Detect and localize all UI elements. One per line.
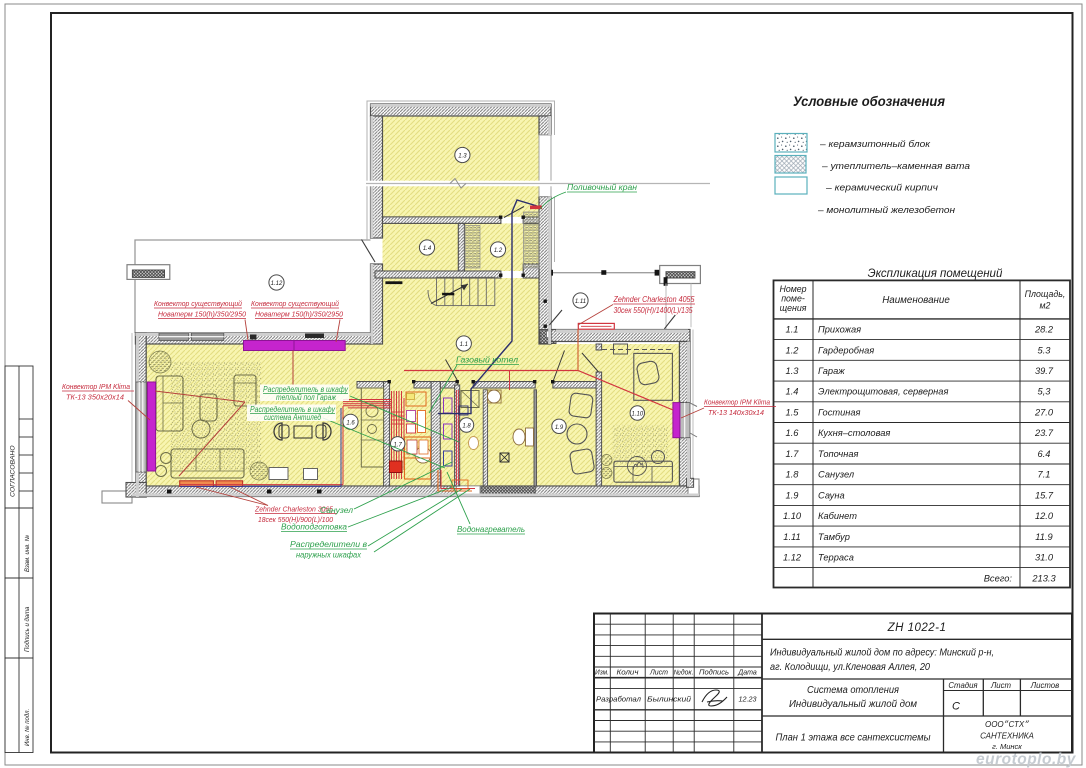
svg-text:1.9: 1.9: [555, 425, 564, 431]
svg-text:1.6: 1.6: [786, 428, 800, 438]
svg-text:Индивидуальный жилой дом: Индивидуальный жилой дом: [789, 699, 917, 710]
svg-text:Взам. инв. №: Взам. инв. №: [24, 534, 31, 572]
svg-text:28.2: 28.2: [1034, 325, 1054, 335]
svg-text:23.7: 23.7: [1034, 428, 1054, 438]
svg-text:1.5: 1.5: [786, 408, 800, 418]
svg-text:1.10: 1.10: [783, 511, 802, 521]
svg-text:Кабинет: Кабинет: [818, 511, 857, 521]
svg-text:м2: м2: [1040, 301, 1051, 311]
svg-text:система Антилед: система Антилед: [264, 413, 322, 422]
svg-text:г. Минск: г. Минск: [992, 742, 1022, 751]
svg-text:Кухня–столовая: Кухня–столовая: [818, 428, 890, 438]
svg-text:Наименование: Наименование: [882, 295, 950, 306]
svg-text:Конвектор IPM Klima: Конвектор IPM Klima: [62, 382, 130, 391]
svg-text:Новатерм 150(h)/350/2950: Новатерм 150(h)/350/2950: [158, 310, 247, 319]
svg-text:Гостиная: Гостиная: [818, 408, 861, 418]
svg-text:1.10: 1.10: [631, 412, 643, 418]
svg-text:Терраса: Терраса: [818, 553, 854, 563]
svg-text:Листов: Листов: [1030, 681, 1059, 690]
svg-text:5.3: 5.3: [1038, 345, 1052, 355]
svg-text:Гардеробная: Гардеробная: [818, 345, 874, 355]
svg-text:1.4: 1.4: [423, 246, 432, 252]
svg-text:– керамзитонный блок: – керамзитонный блок: [819, 139, 931, 150]
svg-text:1.9: 1.9: [786, 490, 799, 500]
svg-text:Стадия: Стадия: [948, 681, 978, 690]
svg-text:Газовый котел: Газовый котел: [456, 355, 518, 365]
svg-text:Гараж: Гараж: [818, 366, 845, 376]
svg-text:Условные обозначения: Условные обозначения: [793, 94, 945, 109]
svg-text:1.8: 1.8: [462, 424, 471, 430]
svg-text:Индивидуальный жилой дом по ад: Индивидуальный жилой дом по адресу: Минс…: [770, 648, 994, 659]
svg-text:Разработал: Разработал: [596, 696, 641, 704]
svg-text:Былинский: Былинский: [647, 696, 691, 704]
svg-text:Новатерм 150(h)/350/2950: Новатерм 150(h)/350/2950: [255, 310, 344, 319]
svg-text:Санузел: Санузел: [320, 506, 354, 515]
svg-text:ООО״СТХ״: ООО״СТХ״: [985, 720, 1029, 729]
svg-text:Лист: Лист: [649, 670, 668, 677]
svg-text:поме-: поме-: [781, 294, 805, 304]
svg-text:1.12: 1.12: [783, 553, 802, 563]
svg-text:1.11: 1.11: [575, 299, 586, 305]
svg-text:Санузел: Санузел: [818, 470, 855, 480]
svg-text:– монолитный железобетон: – монолитный железобетон: [817, 205, 956, 216]
svg-text:Площадь,: Площадь,: [1025, 289, 1066, 299]
svg-text:12.0: 12.0: [1035, 511, 1054, 521]
svg-text:1.4: 1.4: [786, 387, 799, 397]
svg-text:1.6: 1.6: [346, 420, 355, 426]
svg-text:Распределители в: Распределители в: [290, 539, 368, 549]
svg-text:39.7: 39.7: [1035, 366, 1054, 376]
svg-text:– утеплитель–каменная вата: – утеплитель–каменная вата: [821, 161, 970, 172]
svg-text:Изм.: Изм.: [595, 670, 609, 677]
svg-text:Водонагреватель: Водонагреватель: [457, 524, 525, 534]
svg-text:теплый пол Гараж: теплый пол Гараж: [276, 393, 337, 402]
svg-text:30сек 550(Н)/1400(L)/135: 30сек 550(Н)/1400(L)/135: [614, 306, 694, 315]
svg-text:27.0: 27.0: [1034, 408, 1054, 418]
svg-text:Колич: Колич: [617, 670, 639, 677]
svg-text:Конвектор существующий: Конвектор существующий: [154, 299, 242, 308]
svg-text:5,3: 5,3: [1038, 387, 1052, 397]
svg-text:Дата: Дата: [737, 670, 757, 677]
svg-text:Конвектор IPM Klima: Конвектор IPM Klima: [704, 398, 770, 407]
svg-text:Экспликация помещений: Экспликация помещений: [868, 268, 1003, 280]
svg-text:1.3: 1.3: [786, 366, 800, 376]
svg-text:Инв. № подл.: Инв. № подл.: [24, 709, 31, 746]
svg-text:11.9: 11.9: [1035, 532, 1052, 542]
svg-text:1.1: 1.1: [786, 325, 799, 335]
svg-text:1.1: 1.1: [460, 342, 468, 348]
svg-text:1.7: 1.7: [786, 449, 800, 459]
svg-text:План 1 этажа все сантехсистемы: План 1 этажа все сантехсистемы: [776, 733, 932, 744]
svg-text:31.0: 31.0: [1035, 553, 1054, 563]
svg-text:1.11: 1.11: [783, 532, 800, 542]
svg-text:Zehnder Charleston 4055: Zehnder Charleston 4055: [613, 295, 696, 304]
svg-text:15.7: 15.7: [1035, 490, 1054, 500]
svg-text:Подпись: Подпись: [699, 669, 729, 677]
svg-text:Лист: Лист: [990, 681, 1012, 690]
svg-text:12.23: 12.23: [739, 695, 757, 704]
svg-text:7.1: 7.1: [1038, 470, 1051, 480]
svg-text:Сауна: Сауна: [818, 490, 845, 500]
svg-text:1.2: 1.2: [786, 345, 800, 355]
svg-text:1.3: 1.3: [458, 154, 467, 160]
svg-text:№док.: №док.: [674, 669, 694, 677]
svg-text:6.4: 6.4: [1038, 449, 1051, 459]
svg-text:СОГЛАСОВАНО: СОГЛАСОВАНО: [10, 445, 17, 497]
svg-text:аг. Колодищи, ул.Кленовая Алле: аг. Колодищи, ул.Кленовая Аллея, 20: [770, 662, 930, 673]
svg-text:наружных шкафах: наружных шкафах: [296, 550, 362, 560]
svg-text:Номер: Номер: [779, 284, 806, 294]
svg-text:ТК-13 350х20х14: ТК-13 350х20х14: [66, 393, 124, 402]
svg-text:– керамический кирпич: – керамический кирпич: [825, 183, 938, 194]
svg-text:Подпись и дата: Подпись и дата: [25, 606, 31, 652]
svg-text:Электрощитовая, серверная: Электрощитовая, серверная: [818, 387, 948, 397]
svg-text:ZH 1022-1: ZH 1022-1: [887, 622, 947, 634]
svg-text:щения: щения: [780, 303, 807, 313]
svg-text:Всего:: Всего:: [984, 574, 1013, 584]
svg-text:1.2: 1.2: [494, 248, 503, 254]
svg-text:С: С: [952, 701, 960, 713]
svg-text:Тамбур: Тамбур: [818, 532, 850, 542]
svg-text:САНТЕХНИКА: САНТЕХНИКА: [980, 732, 1034, 741]
svg-text:213.3: 213.3: [1031, 574, 1056, 584]
svg-text:Водоподготовка: Водоподготовка: [281, 522, 347, 532]
svg-text:Поливочный кран: Поливочный кран: [567, 183, 638, 192]
svg-text:Топочная: Топочная: [818, 449, 859, 459]
svg-text:1.12: 1.12: [271, 281, 283, 287]
svg-text:eurotoplo.by: eurotoplo.by: [976, 751, 1077, 768]
svg-text:1.8: 1.8: [786, 470, 800, 480]
svg-text:ТК-13 140х30х14: ТК-13 140х30х14: [708, 408, 764, 417]
svg-text:Прихожая: Прихожая: [818, 325, 861, 335]
svg-text:Конвектор существующий: Конвектор существующий: [251, 299, 339, 308]
svg-text:Система отопления: Система отопления: [807, 685, 900, 696]
